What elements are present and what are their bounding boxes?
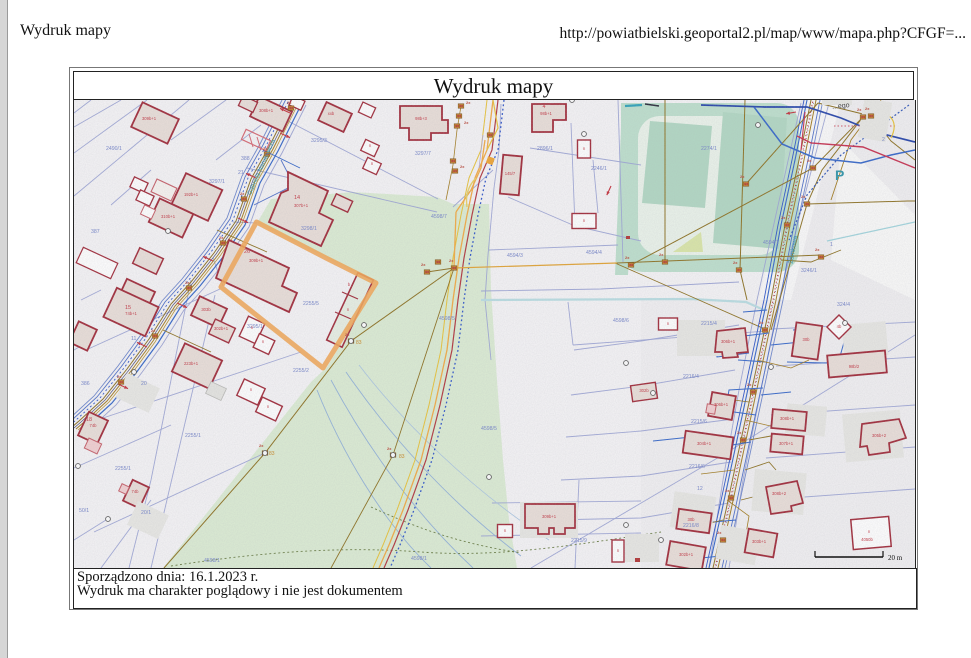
svg-text:20 m: 20 m bbox=[888, 554, 903, 562]
